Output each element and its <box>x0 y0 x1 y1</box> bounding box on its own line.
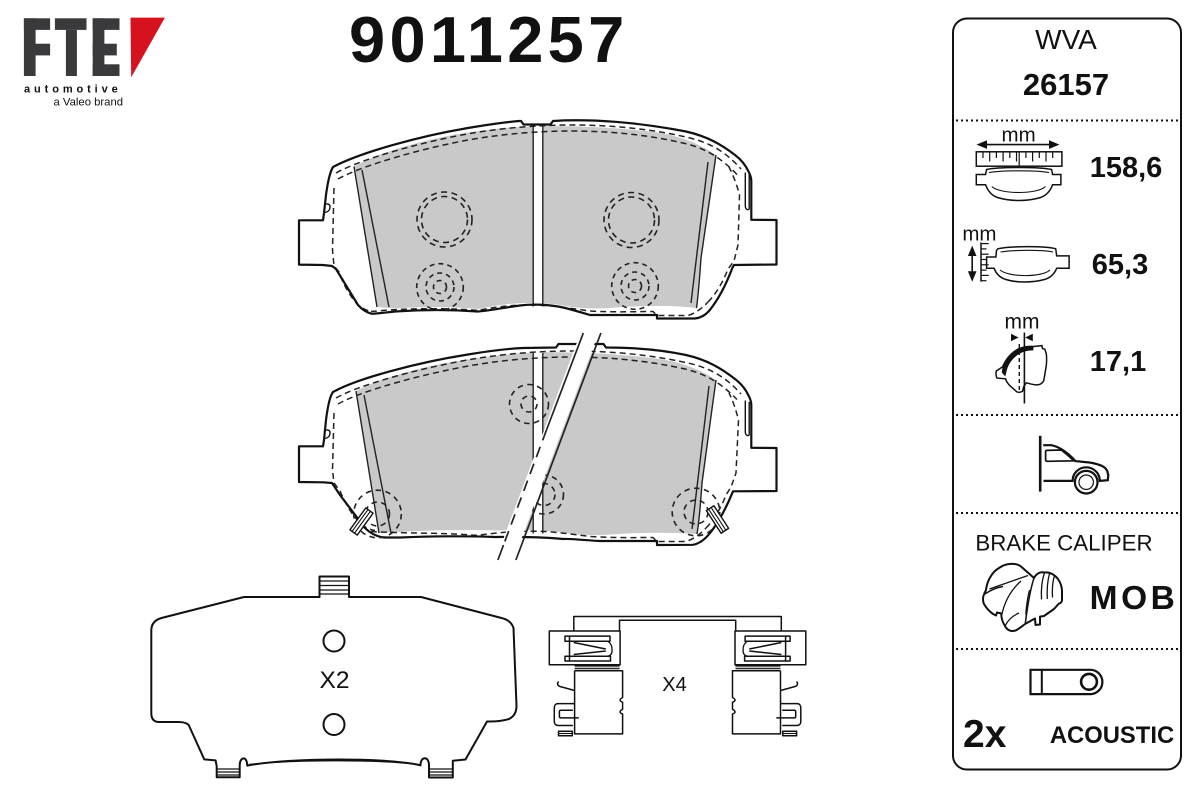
svg-text:X2: X2 <box>320 667 350 694</box>
svg-text:a Valeo brand: a Valeo brand <box>54 97 124 109</box>
svg-text:MOB: MOB <box>1090 580 1179 617</box>
svg-text:65,3: 65,3 <box>1092 249 1148 281</box>
svg-text:X4: X4 <box>662 674 686 696</box>
svg-text:ACOUSTIC: ACOUSTIC <box>1050 722 1174 749</box>
svg-text:automotive: automotive <box>24 84 122 96</box>
svg-text:2x: 2x <box>963 713 1007 756</box>
svg-text:158,6: 158,6 <box>1090 152 1163 184</box>
svg-text:17,1: 17,1 <box>1090 346 1146 378</box>
svg-text:mm: mm <box>962 223 996 246</box>
svg-text:WVA: WVA <box>1035 24 1097 55</box>
svg-text:BRAKE CALIPER: BRAKE CALIPER <box>975 531 1152 556</box>
svg-text:mm: mm <box>1005 311 1040 334</box>
svg-text:26157: 26157 <box>1023 67 1109 102</box>
svg-text:mm: mm <box>1002 124 1036 147</box>
svg-text:9011257: 9011257 <box>349 3 629 76</box>
